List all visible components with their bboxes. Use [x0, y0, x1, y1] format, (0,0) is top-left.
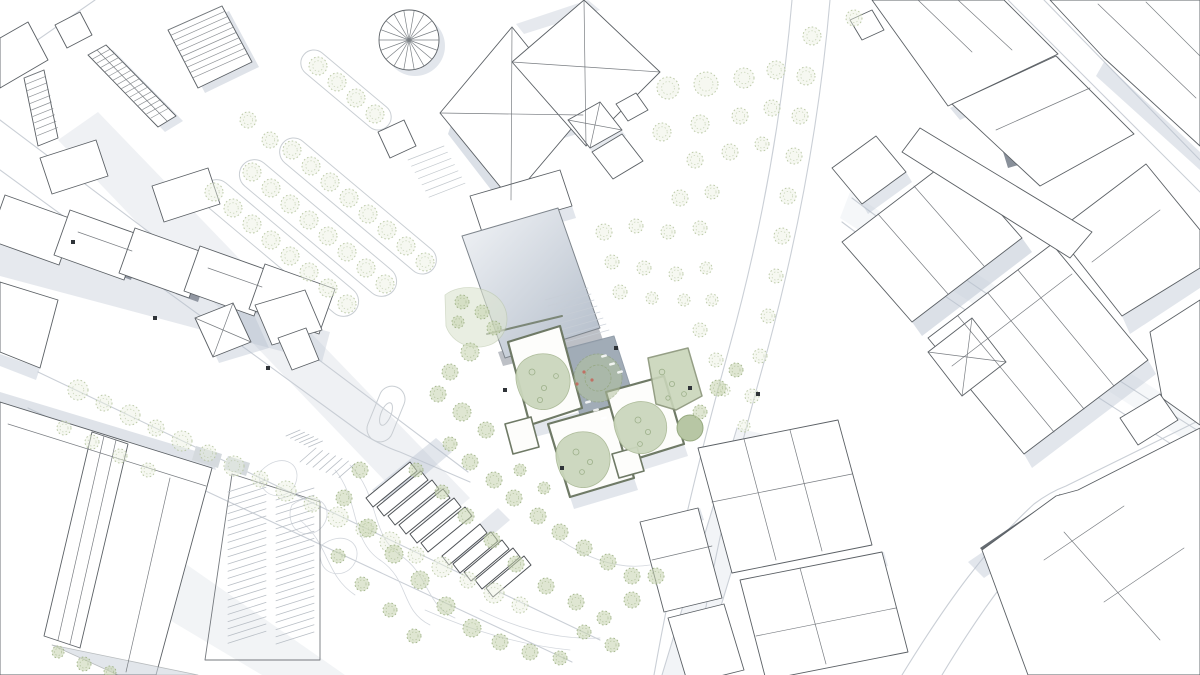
tree-icon — [657, 77, 679, 99]
tree-icon — [624, 592, 640, 608]
tree-icon — [300, 263, 318, 281]
red-accent-dot — [582, 370, 585, 373]
tree-icon — [443, 437, 457, 451]
tree-icon — [432, 557, 452, 577]
tree-icon — [336, 490, 352, 506]
tree-icon — [408, 547, 424, 563]
tree-icon — [52, 646, 64, 658]
marker-dot — [266, 366, 270, 370]
tree-icon — [846, 10, 862, 26]
tree-icon — [416, 253, 434, 271]
tree-icon — [68, 380, 88, 400]
tree-icon — [486, 472, 502, 488]
tree-icon — [452, 316, 464, 328]
tree-icon — [484, 583, 504, 603]
tree-icon — [104, 666, 116, 675]
courtyard-green — [516, 354, 570, 410]
tree-icon — [506, 490, 522, 506]
tree-icon — [302, 157, 320, 175]
tree-icon — [319, 227, 337, 245]
tree-icon — [753, 349, 767, 363]
tree-icon — [240, 112, 256, 128]
tree-icon — [755, 137, 769, 151]
tree-icon — [200, 445, 216, 461]
tree-icon — [646, 292, 658, 304]
marker-dot — [503, 388, 507, 392]
tree-icon — [283, 141, 301, 159]
tree-icon — [700, 262, 712, 274]
tree-icon — [478, 422, 494, 438]
tree-icon — [732, 108, 748, 124]
tree-icon — [475, 305, 489, 319]
tree-icon — [281, 195, 299, 213]
tree-icon — [435, 485, 449, 499]
tree-icon — [693, 221, 707, 235]
tree-icon — [553, 651, 567, 665]
tree-icon — [780, 188, 796, 204]
tree-icon — [262, 179, 280, 197]
tree-icon — [120, 405, 140, 425]
tree-icon — [624, 568, 640, 584]
tree-icon — [304, 496, 320, 512]
tree-icon — [328, 507, 348, 527]
tree-icon — [514, 464, 526, 476]
tree-icon — [661, 225, 675, 239]
tree-icon — [637, 261, 651, 275]
marker-dot — [71, 240, 75, 244]
tree-icon — [366, 105, 384, 123]
tree-icon — [803, 27, 821, 45]
tree-icon — [300, 211, 318, 229]
tree-icon — [508, 556, 524, 572]
site-plan-svg — [0, 0, 1200, 675]
tree-icon — [792, 108, 808, 124]
tree-icon — [522, 644, 538, 660]
tree-icon — [769, 269, 783, 283]
tree-icon — [538, 482, 550, 494]
courtyard-green — [556, 432, 610, 488]
tree-icon — [786, 148, 802, 164]
tree-icon — [430, 386, 446, 402]
tree-icon — [576, 540, 592, 556]
marker-dot — [153, 316, 157, 320]
tree-icon — [319, 279, 337, 297]
tree-icon — [463, 619, 481, 637]
tree-icon — [376, 275, 394, 293]
tree-icon — [347, 89, 365, 107]
marker-dot — [688, 386, 692, 390]
tree-icon — [96, 395, 112, 411]
tree-icon — [597, 611, 611, 625]
tree-icon — [538, 578, 554, 594]
tree-icon — [706, 294, 718, 306]
tree-icon — [605, 638, 619, 652]
tree-icon — [243, 163, 261, 181]
tree-icon — [600, 554, 616, 570]
tree-icon — [77, 657, 91, 671]
tree-icon — [694, 72, 718, 96]
tree-icon — [767, 61, 785, 79]
tree-icon — [458, 508, 474, 524]
tree-icon — [710, 380, 726, 396]
tree-icon — [383, 603, 397, 617]
tree-icon — [764, 100, 780, 116]
tree-icon — [530, 508, 546, 524]
tree-icon — [352, 462, 368, 478]
tree-icon — [409, 463, 423, 477]
tree-icon — [243, 215, 261, 233]
tree-icon — [57, 421, 71, 435]
tree-icon — [338, 243, 356, 261]
tree-icon — [460, 572, 476, 588]
tree-icon — [774, 228, 790, 244]
tree-icon — [738, 420, 750, 432]
tree-icon — [605, 255, 619, 269]
tree-icon — [484, 532, 500, 548]
tree-icon — [596, 224, 612, 240]
tree-icon — [552, 524, 568, 540]
tree-icon — [172, 431, 192, 451]
tree-icon — [385, 545, 403, 563]
tree-icon — [613, 285, 627, 299]
tree-icon — [321, 173, 339, 191]
tree-icon — [455, 295, 469, 309]
tree-icon — [797, 67, 815, 85]
tree-icon — [653, 123, 671, 141]
tree-icon — [262, 132, 278, 148]
tree-icon — [397, 237, 415, 255]
marker-dot — [756, 392, 760, 396]
tree-icon — [85, 435, 99, 449]
tree-icon — [687, 152, 703, 168]
tree-icon — [512, 597, 528, 613]
plaza-tree — [574, 354, 622, 402]
tree-icon — [693, 405, 707, 419]
tree-icon — [224, 199, 242, 217]
tree-icon — [709, 353, 723, 367]
tree-icon — [577, 625, 591, 639]
tree-icon — [462, 454, 478, 470]
tree-icon — [113, 449, 127, 463]
tree-icon — [487, 321, 501, 335]
tree-icon — [437, 597, 455, 615]
tree-icon — [359, 519, 377, 537]
tree-icon — [252, 471, 268, 487]
tree-icon — [729, 363, 743, 377]
tree-icon — [461, 343, 479, 361]
tree-icon — [205, 183, 223, 201]
tree-icon — [309, 57, 327, 75]
tree-icon — [338, 295, 356, 313]
tree-icon — [722, 144, 738, 160]
tree-icon — [328, 73, 346, 91]
tree-icon — [141, 463, 155, 477]
tree-icon — [691, 115, 709, 133]
tree-icon — [648, 568, 664, 584]
red-accent-dot — [575, 382, 578, 385]
tree-icon — [148, 420, 164, 436]
tree-icon — [568, 594, 584, 610]
tree-icon — [357, 259, 375, 277]
tree-icon — [672, 190, 688, 206]
tree-icon — [678, 294, 690, 306]
tree-icon — [355, 577, 369, 591]
tree-icon — [442, 364, 458, 380]
tree-icon — [705, 185, 719, 199]
tree-icon — [693, 323, 707, 337]
tree-icon — [734, 68, 754, 88]
tree-icon — [331, 549, 345, 563]
tree-icon — [669, 267, 683, 281]
tree-icon — [276, 481, 296, 501]
tree-icon — [492, 634, 508, 650]
marker-dot — [560, 466, 564, 470]
tree-icon — [281, 247, 299, 265]
tree-icon — [262, 231, 280, 249]
architectural-site-plan — [0, 0, 1200, 675]
tree-icon — [629, 219, 643, 233]
tree-icon — [359, 205, 377, 223]
tree-icon — [340, 189, 358, 207]
red-accent-dot — [590, 378, 593, 381]
tree-icon — [453, 403, 471, 421]
tree-icon — [224, 456, 244, 476]
tree-icon — [761, 309, 775, 323]
tree-icon — [411, 571, 429, 589]
tree-icon — [407, 629, 421, 643]
marker-dot — [614, 346, 618, 350]
tree-icon — [378, 221, 396, 239]
